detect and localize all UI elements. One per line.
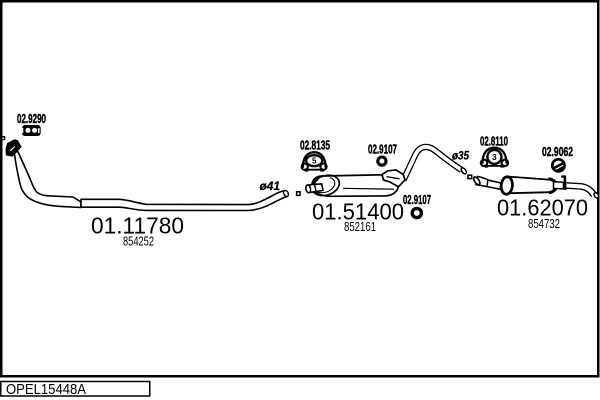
svg-text:ø41: ø41 [260,179,281,193]
svg-text:852161: 852161 [344,220,376,234]
svg-text:OPEL15448A: OPEL15448A [6,382,86,398]
svg-text:02.8110: 02.8110 [480,134,508,149]
svg-text:3: 3 [492,152,497,162]
svg-text:5: 5 [312,157,317,166]
svg-text:02.9107: 02.9107 [403,192,431,207]
svg-text:ø35: ø35 [452,149,469,163]
svg-text:02.9107: 02.9107 [368,142,397,157]
svg-text:02.8135: 02.8135 [300,138,330,153]
svg-text:854252: 854252 [123,235,154,249]
svg-text:854732: 854732 [528,217,560,231]
svg-text:02.9062: 02.9062 [542,144,573,159]
svg-text:02.9290: 02.9290 [17,111,46,126]
